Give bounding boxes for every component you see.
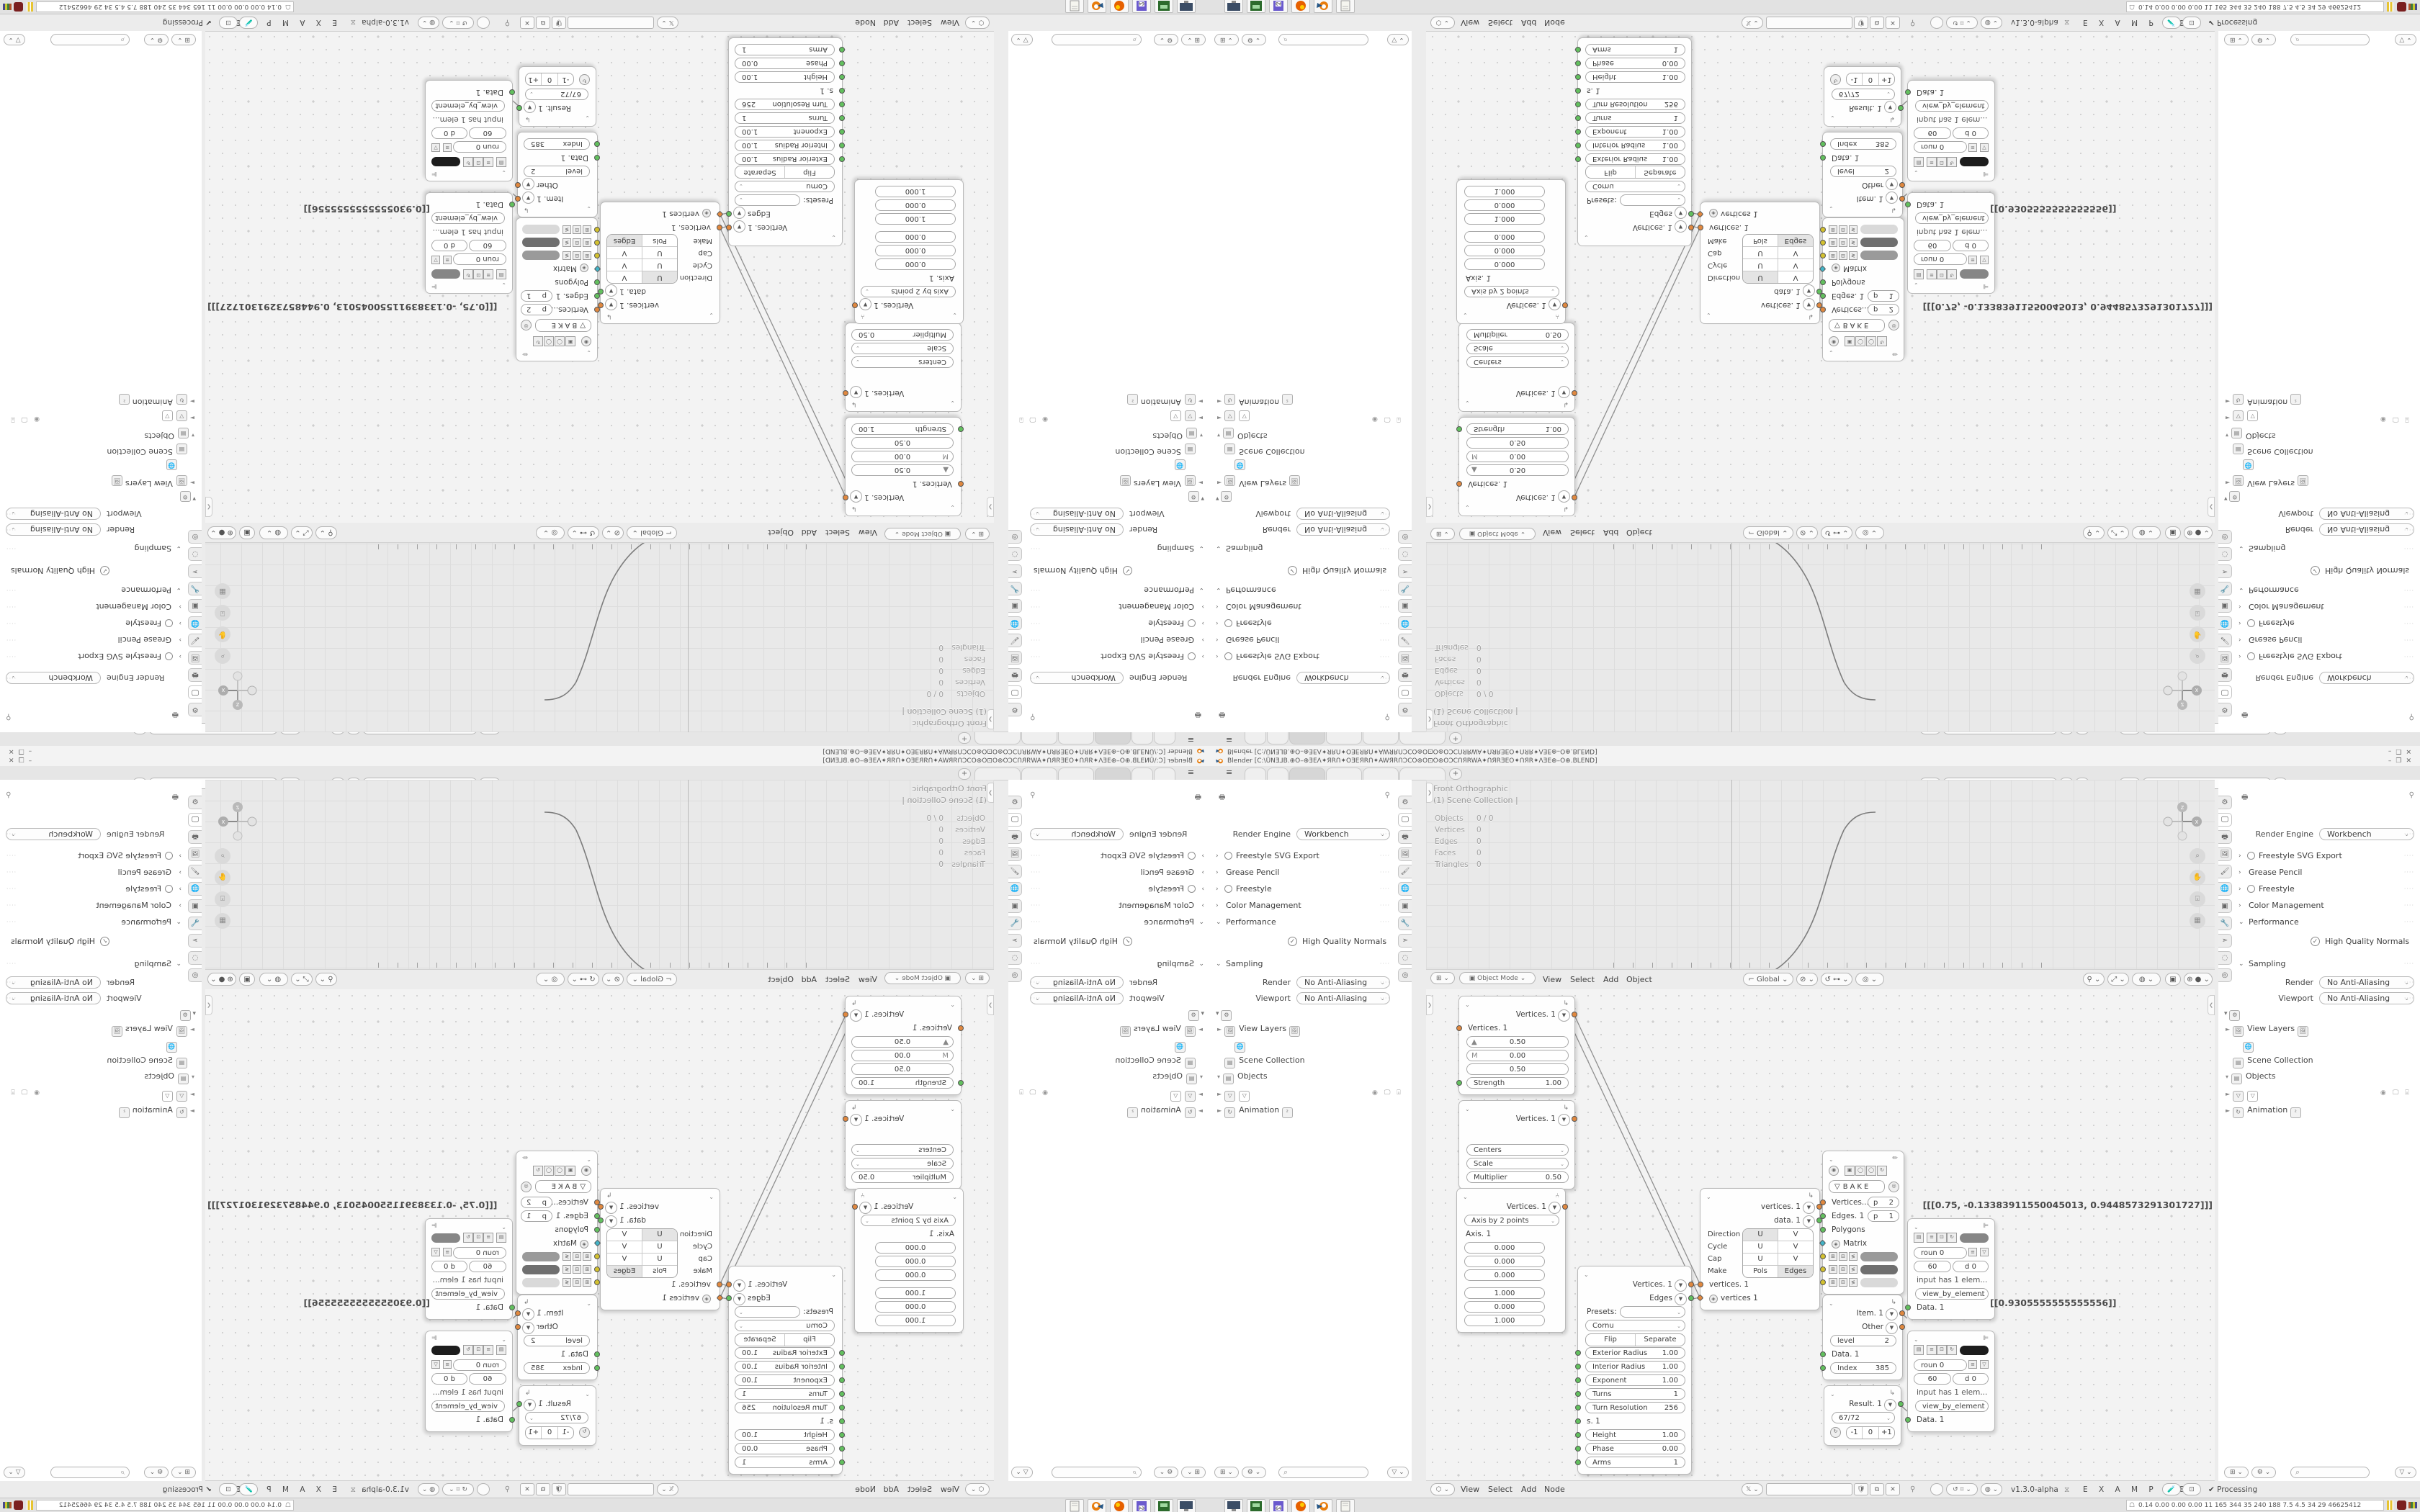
geometry-node-editor[interactable]: ⌄↳Vertices. 1▼Vertices. 1▲0.50M0.000.50S… bbox=[205, 989, 994, 1480]
value-field[interactable]: Height1.00 bbox=[735, 1429, 835, 1441]
node-bake[interactable]: ⌄✏◉▣◯◯↻▽BAKE◎Vertices...p2Edges. 1p1Poly… bbox=[516, 1151, 598, 1295]
taskbar-app-firefox[interactable] bbox=[1110, 1499, 1129, 1512]
input-socket[interactable] bbox=[594, 1254, 600, 1259]
presets-dropdown[interactable]: ⌄ bbox=[735, 194, 800, 206]
bake-settings-icon[interactable]: ◎ bbox=[521, 320, 532, 330]
workspace-tab-3[interactable] bbox=[1326, 732, 1362, 744]
properties-tab-icon-1[interactable]: 🖵 bbox=[2218, 685, 2232, 699]
outliner-header-icon[interactable]: ▾ ⚙ bbox=[1216, 491, 1235, 502]
socket-menu-icon[interactable]: ▼ bbox=[850, 490, 862, 503]
taskbar-app-floppy64[interactable]: 64 bbox=[1269, 0, 1288, 13]
table-cell[interactable]: V bbox=[607, 271, 642, 283]
outliner-filter-button[interactable]: ▽ ⌄ bbox=[1011, 34, 1033, 45]
collapse-caret-icon[interactable]: › bbox=[1201, 632, 1204, 647]
number-field[interactable]: 1.000 bbox=[875, 213, 956, 225]
output-socket[interactable] bbox=[516, 1401, 522, 1407]
outliner-item-objects[interactable]: ▾▤Objects bbox=[1217, 1068, 1268, 1084]
input-socket[interactable] bbox=[1575, 143, 1581, 148]
labeled-value-field[interactable]: Multiplier0.50 bbox=[1466, 1171, 1569, 1183]
outliner-item-animation[interactable]: ►↻Animation ² bbox=[1217, 395, 1296, 410]
editor-type-dropdown[interactable]: ⊞ ⌄ bbox=[965, 528, 990, 540]
parent-node-icon[interactable] bbox=[1930, 17, 1943, 29]
node-bake[interactable]: ⌄✏◉▣◯◯↻▽BAKE◎Vertices...p2Edges. 1p1Poly… bbox=[516, 217, 598, 361]
value-field[interactable]: Strength1.00 bbox=[851, 1077, 954, 1089]
input-socket[interactable] bbox=[1820, 1266, 1826, 1272]
properties-tab-icon-6[interactable]: ▣ bbox=[1008, 899, 1022, 913]
labeled-value-field[interactable]: Multiplier0.50 bbox=[851, 329, 954, 341]
loop-icon[interactable]: ↻ bbox=[1947, 1233, 1957, 1243]
app-menu-icon[interactable]: ≡ bbox=[1183, 768, 1194, 777]
outliner-editor-menu[interactable]: ⚙ ⌄ bbox=[2251, 1467, 2276, 1478]
geometry-node-editor[interactable]: ⌄↳Vertices. 1▼Vertices. 1▲0.50M0.000.50S… bbox=[1426, 32, 2215, 523]
input-socket[interactable] bbox=[839, 1432, 845, 1438]
flip-separate-buttons[interactable]: FlipSeparate bbox=[1585, 1333, 1685, 1346]
count-field[interactable]: d 0 bbox=[431, 240, 467, 251]
properties-tab-icon-3[interactable]: 🖼 bbox=[188, 651, 202, 665]
input-socket[interactable] bbox=[839, 1350, 845, 1356]
display-icon[interactable]: ▤ bbox=[496, 157, 506, 167]
output-socket[interactable] bbox=[1562, 1204, 1568, 1210]
outliner-item-icon[interactable]: ►🌐 bbox=[163, 460, 194, 475]
fake-user-icon[interactable]: 🛡 bbox=[552, 17, 566, 29]
socket-chip[interactable]: p2 bbox=[521, 1197, 552, 1208]
properties-tab-icon-6[interactable]: ▣ bbox=[1008, 599, 1022, 613]
labeled-value-field[interactable]: level2 bbox=[524, 1335, 590, 1346]
swatch-option-icon[interactable]: ⊞ bbox=[1829, 251, 1837, 260]
cycle-icon[interactable]: ↻ bbox=[579, 1427, 590, 1438]
panel-header-label[interactable]: Freestyle SVG Export bbox=[1236, 849, 1319, 863]
geometry-node-editor[interactable]: ⌄↳Vertices. 1▼Vertices. 1▲0.50M0.000.50S… bbox=[1426, 989, 2215, 1480]
input-socket[interactable] bbox=[839, 1377, 845, 1383]
dropdown-field[interactable]: Scale⌄ bbox=[851, 1158, 954, 1169]
editor-type-dropdown[interactable]: ⊞ ⌄ bbox=[1430, 972, 1455, 984]
menu-add[interactable]: Add bbox=[884, 1481, 899, 1498]
panel-header-label[interactable]: Grease Pencil bbox=[2249, 865, 2302, 880]
panel-checkbox[interactable] bbox=[1224, 652, 1232, 660]
dropdown-field[interactable]: 67/72⌄ bbox=[1832, 89, 1895, 100]
dropdown-field[interactable]: Scale⌄ bbox=[851, 343, 954, 354]
snap-dropdown[interactable]: ↺ ⊶ ⌄ bbox=[1821, 526, 1852, 539]
outliner-item-icon[interactable]: ►🌐 bbox=[1217, 1037, 1249, 1052]
table-cell[interactable]: U bbox=[642, 1229, 677, 1241]
input-socket[interactable] bbox=[594, 279, 600, 285]
value-field[interactable]: Exponent1.00 bbox=[1585, 126, 1685, 138]
panel-icon[interactable]: ⊡ bbox=[473, 1233, 483, 1243]
properties-tab-icon-2[interactable]: 🖶 bbox=[1398, 830, 1412, 844]
collapse-caret-icon[interactable]: › bbox=[179, 649, 181, 663]
input-socket[interactable] bbox=[1820, 1213, 1826, 1219]
menu-object[interactable]: Object bbox=[1626, 523, 1652, 542]
value-field[interactable]: Strength1.00 bbox=[851, 423, 954, 435]
collapse-caret-icon[interactable]: › bbox=[1216, 649, 1219, 663]
shading-solid-icon[interactable]: ▣ bbox=[239, 973, 255, 986]
table-cell[interactable]: Pols bbox=[1743, 235, 1778, 246]
property-dropdown[interactable]: Workbench⌄ bbox=[6, 828, 101, 840]
visibility-icons[interactable]: ◉ 🖵 ⌻ bbox=[9, 1086, 40, 1101]
panel-header-label[interactable]: Freestyle bbox=[125, 882, 161, 896]
collapse-caret-icon[interactable]: › bbox=[1216, 899, 1219, 913]
menu-add[interactable]: Add bbox=[802, 970, 817, 989]
outliner-item-view-layers[interactable]: ►🖼View Layers 🖼 bbox=[1217, 1021, 1304, 1036]
outliner-item-icon[interactable]: ►▽▽◉ 🖵 ⌻ bbox=[1217, 1086, 1253, 1101]
window-buttons[interactable]: –❐✕ bbox=[2388, 746, 2416, 756]
filter-icon[interactable]: ▽ bbox=[431, 1360, 440, 1369]
output-socket[interactable] bbox=[1572, 1012, 1577, 1017]
socket-menu-icon[interactable]: ▼ bbox=[1886, 192, 1898, 204]
input-socket[interactable] bbox=[1820, 141, 1826, 147]
node-cornu[interactable]: ⌄Vertices. 1▼Edges▼Presets:⌄Cornu⌄FlipSe… bbox=[1577, 1266, 1692, 1475]
panel-header-label[interactable]: Freestyle SVG Export bbox=[1101, 849, 1184, 863]
count-field[interactable]: 60 bbox=[469, 1261, 506, 1272]
checkbox-checked[interactable]: ✓ bbox=[100, 937, 109, 946]
value-stepper[interactable]: M0.00 bbox=[1466, 451, 1569, 462]
tray-icon-multi[interactable] bbox=[3, 1502, 12, 1508]
tray-icon-red[interactable] bbox=[14, 2, 23, 12]
filter-icon[interactable]: ▽ bbox=[431, 1248, 440, 1256]
output-socket[interactable] bbox=[515, 1310, 521, 1316]
value-field[interactable]: Phase0.00 bbox=[1585, 58, 1685, 69]
outliner-display-mode[interactable]: ⊞ ⌄ bbox=[171, 1467, 196, 1478]
parent-node-icon[interactable] bbox=[477, 17, 490, 29]
input-socket[interactable] bbox=[1456, 1080, 1462, 1086]
collapse-caret-icon[interactable]: › bbox=[2238, 849, 2241, 863]
socket-menu-icon[interactable]: ▼ bbox=[1549, 1202, 1561, 1214]
console-button[interactable]: ⊡ bbox=[2182, 1483, 2201, 1495]
table-cell[interactable]: U bbox=[1743, 1254, 1778, 1265]
flip-separate-buttons[interactable]: FlipSeparate bbox=[1585, 166, 1685, 179]
outliner-item-view-layers[interactable]: ►🖼View Layers 🖼 bbox=[2226, 1021, 2312, 1036]
input-socket[interactable] bbox=[1820, 1351, 1826, 1357]
properties-tab-icon-4[interactable]: 🖌 bbox=[188, 865, 202, 878]
menu-select[interactable]: Select bbox=[1488, 14, 1512, 31]
menu-view[interactable]: View bbox=[1543, 970, 1561, 989]
console-button[interactable]: ⊡ bbox=[2182, 17, 2201, 29]
node-level[interactable]: ⌄↳Item. 1▼Other▼level2Data. 1Index385 bbox=[517, 1295, 598, 1380]
camera-view-button[interactable]: ⌻ bbox=[215, 891, 230, 907]
panel-header-label[interactable]: Performance bbox=[121, 582, 171, 597]
panel-icon[interactable]: ⊡ bbox=[473, 1345, 483, 1355]
input-socket[interactable] bbox=[1575, 102, 1581, 107]
viewport-3d[interactable]: Front Orthographic (1) Scene Collection … bbox=[205, 543, 994, 732]
eye-toggle-icon[interactable]: ◉ bbox=[581, 1166, 591, 1176]
tree-type-icon[interactable]: 𝕏 ⌄ bbox=[1742, 1483, 1763, 1495]
properties-tab-icon-9[interactable]: ◌ bbox=[1398, 951, 1412, 965]
display-icon[interactable]: ▤ bbox=[496, 1233, 506, 1243]
swatch-option-icon[interactable]: ≶ bbox=[1849, 1278, 1857, 1287]
number-field[interactable]: 1.000 bbox=[875, 186, 956, 197]
viewport-3d[interactable]: Front Orthographic (1) Scene Collection … bbox=[1426, 543, 2215, 732]
flip-button[interactable]: Flip bbox=[1586, 166, 1635, 178]
taskbar-app-notes[interactable] bbox=[1336, 1499, 1355, 1512]
bake-button[interactable]: ▽BAKE bbox=[535, 1180, 591, 1193]
dropdown-field[interactable]: Axis by 2 points⌄ bbox=[1464, 1215, 1559, 1226]
offset-button[interactable]: 0 bbox=[1862, 1427, 1878, 1439]
workspace-tab-3[interactable] bbox=[1058, 732, 1094, 744]
socket-menu-icon[interactable]: ▼ bbox=[605, 1215, 617, 1228]
input-socket[interactable] bbox=[1698, 1282, 1703, 1287]
menu-add[interactable]: Add bbox=[1603, 970, 1618, 989]
properties-tab-icon-7[interactable]: 🔧 bbox=[1398, 582, 1412, 595]
outliner-display-mode[interactable]: ⊞ ⌄ bbox=[1181, 1467, 1206, 1478]
count-field[interactable]: 60 bbox=[1914, 127, 1951, 139]
mode-table[interactable]: UVUVUVPolsEdges bbox=[1742, 234, 1814, 284]
fake-user-icon[interactable]: 🛡 bbox=[1854, 1483, 1868, 1495]
number-field[interactable]: 0.000 bbox=[1464, 1242, 1545, 1254]
socket-menu-icon[interactable]: ▼ bbox=[1886, 1322, 1898, 1334]
panel-header-label[interactable]: Grease Pencil bbox=[118, 865, 171, 880]
output-socket[interactable] bbox=[515, 196, 521, 202]
input-socket[interactable] bbox=[1575, 156, 1581, 162]
run-field[interactable]: roun 0 bbox=[453, 253, 506, 265]
properties-tab-icon-5[interactable]: 🌐 bbox=[1398, 616, 1412, 630]
input-socket[interactable] bbox=[1575, 1432, 1581, 1438]
collapse-caret-icon[interactable]: › bbox=[1216, 865, 1219, 880]
taskbar-app-blender[interactable] bbox=[1088, 0, 1106, 13]
table-cell[interactable]: Pols bbox=[642, 1266, 677, 1277]
swatch-option-icon[interactable]: ≶ bbox=[1849, 1252, 1857, 1261]
snap-dropdown[interactable]: ↺ ⊶ ⌄ bbox=[568, 526, 599, 539]
color-swatch[interactable] bbox=[1860, 238, 1898, 247]
overlay-dropdown[interactable]: ◍ ⌄ bbox=[1981, 17, 2002, 29]
outliner-header-icon[interactable]: ▾ ⚙ bbox=[1216, 1010, 1235, 1021]
panel-icon[interactable]: ⊡ bbox=[1937, 1233, 1947, 1243]
properties-tab-icon-6[interactable]: ▣ bbox=[2218, 899, 2232, 913]
swatch-option-icon[interactable]: ⊞ bbox=[583, 1265, 591, 1274]
input-socket[interactable] bbox=[958, 1025, 964, 1031]
mode-table[interactable]: UVUVUVPolsEdges bbox=[1742, 1228, 1814, 1278]
count-field[interactable]: d 0 bbox=[1953, 1261, 1989, 1272]
swatch-option-icon[interactable]: ⊞ bbox=[583, 238, 591, 247]
swatch-option-icon[interactable]: ⊟ bbox=[573, 251, 581, 260]
swatch-option-icon[interactable]: ⊟ bbox=[1839, 225, 1847, 234]
list-icon[interactable]: ≡ bbox=[443, 1248, 452, 1256]
workspace-tab-0[interactable] bbox=[1245, 732, 1266, 744]
unlink-icon[interactable]: ✕ bbox=[520, 1483, 534, 1495]
output-socket[interactable] bbox=[843, 495, 848, 500]
outliner-item-icon[interactable]: ►🌐 bbox=[1171, 460, 1203, 475]
workspace-tab-2[interactable] bbox=[1289, 768, 1325, 780]
workspace-tab-3[interactable] bbox=[1058, 768, 1094, 780]
dropdown-field[interactable]: Centers⌄ bbox=[1466, 356, 1569, 368]
panel-header-label[interactable]: Grease Pencil bbox=[1226, 632, 1279, 647]
checkbox-checked[interactable]: ✓ bbox=[2311, 937, 2320, 946]
swatch-option-icon[interactable]: ⊟ bbox=[1839, 238, 1847, 247]
list-icon[interactable]: ≡ bbox=[443, 143, 452, 152]
panel-header-label[interactable]: Freestyle SVG Export bbox=[78, 849, 161, 863]
node-axis-by-2-points[interactable]: ⌄⑃Vertices. 1▼Axis by 2 points⌄Axis. 10.… bbox=[854, 1188, 964, 1333]
display-toggle-icon[interactable]: ◯ bbox=[1855, 336, 1865, 346]
workspace-tab-2[interactable] bbox=[1095, 768, 1131, 780]
taskbar-app-capture[interactable] bbox=[1247, 1499, 1265, 1512]
socket-menu-icon[interactable]: ▼ bbox=[1558, 490, 1570, 503]
visibility-icons[interactable]: ◉ 🖵 ⌻ bbox=[2380, 1086, 2411, 1101]
number-field[interactable]: 0.000 bbox=[875, 1269, 956, 1281]
chart-tray-icon[interactable] bbox=[27, 1500, 33, 1510]
node-result[interactable]: ⌄↳Result. 1▼67/72⌄↻-10+1 bbox=[1824, 1385, 1901, 1446]
input-socket[interactable] bbox=[839, 115, 845, 121]
color-swatch[interactable] bbox=[1860, 1278, 1898, 1287]
panel-checkbox[interactable] bbox=[165, 652, 173, 660]
properties-tab-icon-3[interactable]: 🖼 bbox=[1398, 847, 1412, 861]
run-field[interactable]: roun 0 bbox=[453, 1247, 506, 1259]
node-cornu[interactable]: ⌄Vertices. 1▼Edges▼Presets:⌄Cornu⌄FlipSe… bbox=[728, 1266, 843, 1475]
outliner-item-objects[interactable]: ▾▤Objects bbox=[1152, 428, 1203, 444]
number-field[interactable]: 0.000 bbox=[875, 245, 956, 256]
separate-button[interactable]: Separate bbox=[1635, 166, 1685, 178]
panel-checkbox[interactable] bbox=[2247, 619, 2255, 627]
app-menu-icon[interactable]: ≡ bbox=[1183, 735, 1194, 744]
properties-tab-icon-2[interactable]: 🖶 bbox=[1398, 668, 1412, 682]
node-centers[interactable]: ⌄↳Vertices. 1▼Centers⌄Scale⌄Multiplier0.… bbox=[1458, 323, 1575, 412]
expand-caret-icon[interactable]: ⌄ bbox=[1216, 915, 1222, 930]
panel-header-label[interactable]: Freestyle SVG Export bbox=[2259, 849, 2342, 863]
outliner-filter-button[interactable]: ▽ ⌄ bbox=[1011, 1467, 1033, 1478]
value-field[interactable]: Exterior Radius1.00 bbox=[735, 1347, 835, 1359]
preview-pill[interactable] bbox=[431, 269, 460, 279]
socket-menu-icon[interactable]: ▼ bbox=[1675, 1279, 1687, 1292]
xray-dropdown[interactable]: ◍ ⌄ bbox=[2132, 526, 2161, 539]
outliner-item-view-layers[interactable]: ►🖼View Layers 🖼 bbox=[1217, 476, 1304, 491]
node-strength[interactable]: ⌄↳Vertices. 1▼Vertices. 1▲0.50M0.000.50S… bbox=[845, 417, 962, 516]
outliner-item-objects[interactable]: ▾▤Objects bbox=[144, 428, 194, 444]
properties-tab-icon-5[interactable]: 🌐 bbox=[1008, 616, 1022, 630]
output-socket[interactable] bbox=[726, 225, 732, 230]
swatch-option-icon[interactable]: ⊟ bbox=[1839, 1265, 1847, 1274]
copy-icon[interactable]: ⧉ bbox=[1870, 1483, 1884, 1495]
table-cell[interactable]: U bbox=[1743, 247, 1778, 258]
value-field[interactable]: Height1.00 bbox=[1585, 71, 1685, 83]
gizmos-dropdown[interactable]: ⤢ ⌄ bbox=[291, 526, 313, 539]
offset-button[interactable]: -1 bbox=[1847, 73, 1862, 85]
labeled-value-field[interactable]: level2 bbox=[1830, 166, 1896, 177]
count-field[interactable]: d 0 bbox=[431, 127, 467, 139]
expand-caret-icon[interactable]: ⌄ bbox=[1216, 582, 1222, 597]
list-icon[interactable]: ≡ bbox=[1968, 1248, 1977, 1256]
properties-tab-icon-2[interactable]: 🖶 bbox=[188, 668, 202, 682]
value-stepper[interactable]: M0.00 bbox=[1466, 1050, 1569, 1061]
checkbox-checked[interactable]: ✓ bbox=[1123, 937, 1132, 946]
outliner-item-animation[interactable]: ►↻Animation ² bbox=[2226, 1102, 2305, 1117]
property-dropdown[interactable]: Workbench⌄ bbox=[2319, 672, 2414, 684]
outliner-display-mode[interactable]: ⊞ ⌄ bbox=[1214, 34, 1239, 45]
checkbox-checked[interactable]: ✓ bbox=[1288, 566, 1297, 575]
socket-menu-icon[interactable]: ▼ bbox=[733, 1279, 745, 1292]
outliner-item-icon[interactable]: ►▽▽◉ 🖵 ⌻ bbox=[158, 411, 194, 426]
toolbar-collapse-arrow[interactable]: ❯ bbox=[1426, 709, 1433, 729]
number-field[interactable]: 0.000 bbox=[1464, 231, 1545, 243]
proportional-edit-dropdown[interactable]: ◎ ⌄ bbox=[1855, 526, 1884, 539]
property-dropdown[interactable]: No Anti-Aliasing⌄ bbox=[6, 523, 101, 536]
menu-view[interactable]: View bbox=[1461, 14, 1479, 31]
dropdown-field[interactable]: Centers⌄ bbox=[851, 356, 954, 368]
properties-tab-icon-4[interactable]: 🖌 bbox=[2218, 865, 2232, 878]
output-socket[interactable] bbox=[852, 1204, 858, 1210]
table-cell[interactable]: Pols bbox=[642, 235, 677, 246]
checkbox-checked[interactable]: ✓ bbox=[1123, 566, 1132, 575]
pan-button[interactable]: ✋ bbox=[215, 626, 230, 642]
table-cell[interactable]: V bbox=[1778, 1241, 1813, 1253]
run-field[interactable]: roun 0 bbox=[1914, 141, 1967, 153]
socket-menu-icon[interactable]: ▼ bbox=[1803, 1202, 1815, 1214]
dropdown-field[interactable]: view_by_element⌄ bbox=[431, 100, 505, 112]
properties-tab-icon-6[interactable]: ▣ bbox=[188, 599, 202, 613]
offset-buttons[interactable]: -10+1 bbox=[525, 1426, 574, 1439]
editor-type-dropdown[interactable]: ⬡ ⌄ bbox=[1430, 1483, 1455, 1495]
editor-type-dropdown[interactable]: ⬡ ⌄ bbox=[965, 17, 990, 29]
outliner-filter-button[interactable]: ▽ ⌄ bbox=[2395, 1467, 2416, 1478]
properties-tab-icon-4[interactable]: 🖌 bbox=[1008, 634, 1022, 647]
output-socket[interactable] bbox=[1572, 390, 1577, 396]
workspace-tab-5[interactable] bbox=[974, 732, 1021, 744]
unlink-icon[interactable]: ✕ bbox=[520, 17, 534, 29]
outliner-item-scene-collection[interactable]: ►▤Scene Collection bbox=[107, 444, 194, 459]
panel-checkbox[interactable] bbox=[1188, 885, 1196, 893]
value-field[interactable]: Turn Resolution256 bbox=[735, 1402, 835, 1413]
properties-tab-icon-6[interactable]: ▣ bbox=[188, 899, 202, 913]
display-toggle-icon[interactable]: ↻ bbox=[533, 336, 543, 346]
loop-icon[interactable]: ↻ bbox=[1947, 1345, 1957, 1355]
dropdown-field[interactable]: Scale⌄ bbox=[1466, 343, 1569, 354]
bake-settings-icon[interactable]: ◎ bbox=[1888, 320, 1899, 330]
node-group-name-field[interactable] bbox=[1766, 17, 1852, 29]
outliner-item-icon[interactable]: ►🌐 bbox=[163, 1037, 194, 1052]
table-cell[interactable]: V bbox=[607, 1241, 642, 1253]
properties-tab-icon-2[interactable]: 🖶 bbox=[2218, 830, 2232, 844]
node-view-by-element-1[interactable]: ⌄⊫▤≡⊡↻roun 0≡▽60d 0input has 1 elem...vi… bbox=[425, 192, 513, 294]
gizmos-dropdown[interactable]: ⤢ ⌄ bbox=[2107, 526, 2129, 539]
table-cell[interactable]: U bbox=[642, 1254, 677, 1265]
shading-dropdown[interactable]: ⊕ ● ⌄ bbox=[2184, 973, 2213, 986]
dropdown-field[interactable]: 67/72⌄ bbox=[525, 1412, 588, 1423]
add-workspace-button[interactable]: + bbox=[1449, 732, 1462, 744]
menu-add[interactable]: Add bbox=[1521, 14, 1536, 31]
outliner-editor-menu[interactable]: ⚙ ⌄ bbox=[2251, 34, 2276, 45]
value-field[interactable]: Arms1 bbox=[1585, 44, 1685, 55]
flip-button[interactable]: Flip bbox=[785, 1334, 834, 1346]
number-field[interactable]: 1.000 bbox=[1464, 1287, 1545, 1299]
count-field[interactable]: d 0 bbox=[431, 1373, 467, 1385]
value-stepper[interactable]: ▲0.50 bbox=[851, 1036, 954, 1048]
input-socket[interactable] bbox=[594, 141, 600, 147]
outliner-search-input[interactable] bbox=[2290, 34, 2370, 45]
menu-select[interactable]: Select bbox=[1570, 523, 1595, 542]
value-field[interactable]: Exterior Radius1.00 bbox=[735, 153, 835, 165]
workspace-tab-4[interactable] bbox=[1363, 732, 1399, 744]
socket-menu-icon[interactable]: ▼ bbox=[733, 220, 745, 233]
output-socket[interactable] bbox=[1899, 1310, 1905, 1316]
script-button[interactable]: 🧪 bbox=[239, 17, 258, 29]
preview-pill[interactable] bbox=[1960, 1346, 1989, 1355]
copy-icon[interactable]: ⧉ bbox=[536, 17, 550, 29]
shading-dropdown[interactable]: ⊕ ● ⌄ bbox=[207, 526, 236, 539]
properties-tab-icon-8[interactable]: ➣ bbox=[2218, 934, 2232, 948]
menu-view[interactable]: View bbox=[1461, 1481, 1479, 1498]
flip-button[interactable]: Flip bbox=[785, 166, 834, 178]
expand-caret-icon[interactable]: ⌄ bbox=[1198, 915, 1204, 930]
list-icon[interactable]: ≡ bbox=[1927, 1233, 1937, 1243]
value-field[interactable]: Turns1 bbox=[1585, 112, 1685, 124]
panel-checkbox[interactable] bbox=[165, 619, 173, 627]
properties-tab-icon-4[interactable]: 🖌 bbox=[1008, 865, 1022, 878]
swatch-option-icon[interactable]: ≶ bbox=[563, 238, 571, 247]
outliner-item-objects[interactable]: ▾▤Objects bbox=[2226, 1068, 2276, 1084]
output-socket[interactable] bbox=[1572, 1116, 1577, 1122]
console-button[interactable]: ⊡ bbox=[219, 1483, 238, 1495]
socket-menu-icon[interactable]: ▼ bbox=[524, 1399, 536, 1411]
menu-select[interactable]: Select bbox=[1488, 1481, 1512, 1498]
outliner-item-objects[interactable]: ▾▤Objects bbox=[1217, 428, 1268, 444]
panel-header-label[interactable]: Sampling bbox=[1157, 957, 1195, 971]
